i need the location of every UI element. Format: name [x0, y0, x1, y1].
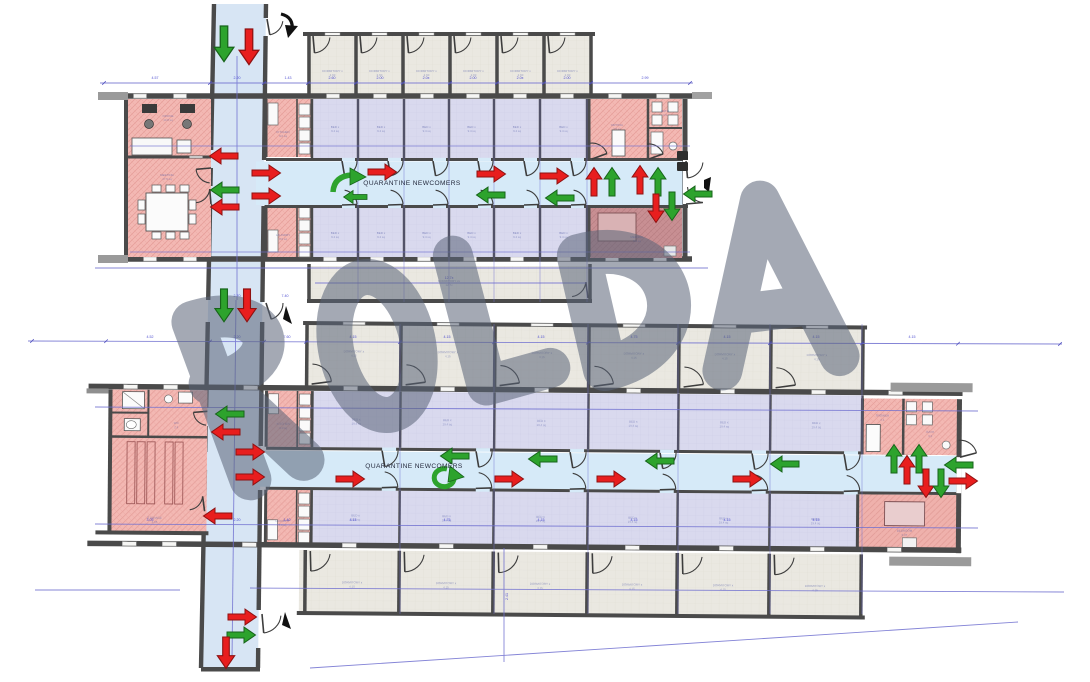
svg-text:2.0x: 2.0x [423, 76, 430, 80]
svg-text:17.9 sq: 17.9 sq [162, 177, 172, 181]
svg-text:3.9: 3.9 [928, 434, 932, 438]
svg-text:4.15: 4.15 [631, 518, 638, 522]
svg-text:9.4 sq: 9.4 sq [560, 129, 568, 133]
svg-text:19.4 sq: 19.4 sq [720, 424, 730, 428]
svg-text:14.8 sq: 14.8 sq [163, 118, 173, 122]
svg-text:4.15: 4.15 [909, 335, 916, 339]
svg-text:3.9: 3.9 [663, 113, 667, 117]
svg-text:4.15: 4.15 [724, 518, 731, 522]
svg-text:9.4 sq: 9.4 sq [513, 129, 521, 133]
svg-text:4.15: 4.15 [349, 585, 355, 589]
svg-text:4.15: 4.15 [720, 588, 726, 592]
svg-text:3.05: 3.05 [147, 518, 154, 522]
svg-text:2.00: 2.00 [564, 76, 571, 80]
svg-text:2.00: 2.00 [470, 76, 477, 80]
svg-text:QUARANTINE NEWCOMERS: QUARANTINE NEWCOMERS [365, 463, 463, 470]
svg-text:9.4 sq: 9.4 sq [331, 235, 339, 239]
svg-text:7.40: 7.40 [282, 294, 289, 298]
svg-text:9.0 sq: 9.0 sq [279, 134, 287, 138]
svg-text:19.4 sq: 19.4 sq [537, 423, 547, 427]
svg-text:9.4 sq: 9.4 sq [513, 235, 521, 239]
svg-text:4.15: 4.15 [813, 518, 820, 522]
svg-text:1.40: 1.40 [284, 518, 291, 522]
svg-text:6.07: 6.07 [902, 533, 908, 537]
svg-text:9.4 sq: 9.4 sq [377, 235, 385, 239]
svg-text:2.41: 2.41 [505, 593, 509, 600]
svg-text:2.0x: 2.0x [517, 76, 524, 80]
svg-text:4.15: 4.15 [350, 518, 357, 522]
svg-text:4.75: 4.75 [444, 518, 451, 522]
svg-text:4.15: 4.15 [812, 588, 818, 592]
svg-text:2.00: 2.00 [377, 76, 384, 80]
svg-text:2.4: 2.4 [174, 425, 178, 429]
svg-text:4.15: 4.15 [444, 335, 451, 339]
svg-text:8.6 sq: 8.6 sq [279, 237, 287, 241]
svg-text:2.60: 2.60 [329, 76, 336, 80]
svg-text:2.20: 2.20 [234, 518, 241, 522]
svg-text:2.99: 2.99 [642, 76, 649, 80]
svg-text:9.4 sq: 9.4 sq [468, 235, 476, 239]
svg-text:4.15: 4.15 [538, 518, 545, 522]
svg-text:4.15: 4.15 [445, 354, 451, 358]
svg-text:9.4 sq: 9.4 sq [468, 129, 476, 133]
svg-text:7.60: 7.60 [284, 335, 291, 339]
svg-text:QUARANTINE NEWCOMERS: QUARANTINE NEWCOMERS [363, 180, 461, 187]
svg-text:4.57: 4.57 [152, 76, 159, 80]
svg-text:19.4 sq: 19.4 sq [443, 422, 453, 426]
svg-text:2.20: 2.20 [234, 76, 241, 80]
svg-text:9.4 sq: 9.4 sq [423, 235, 431, 239]
svg-text:19.4 sq: 19.4 sq [812, 425, 822, 429]
svg-text:9.4 sq: 9.4 sq [377, 129, 385, 133]
svg-text:4.1: 4.1 [880, 418, 884, 422]
svg-text:9.4 sq: 9.4 sq [423, 129, 431, 133]
svg-text:4.52: 4.52 [147, 335, 154, 339]
svg-text:1.43: 1.43 [285, 76, 292, 80]
svg-text:4.15: 4.15 [538, 335, 545, 339]
svg-text:19.4 sq: 19.4 sq [629, 424, 639, 428]
svg-text:9.4 sq: 9.4 sq [331, 129, 339, 133]
